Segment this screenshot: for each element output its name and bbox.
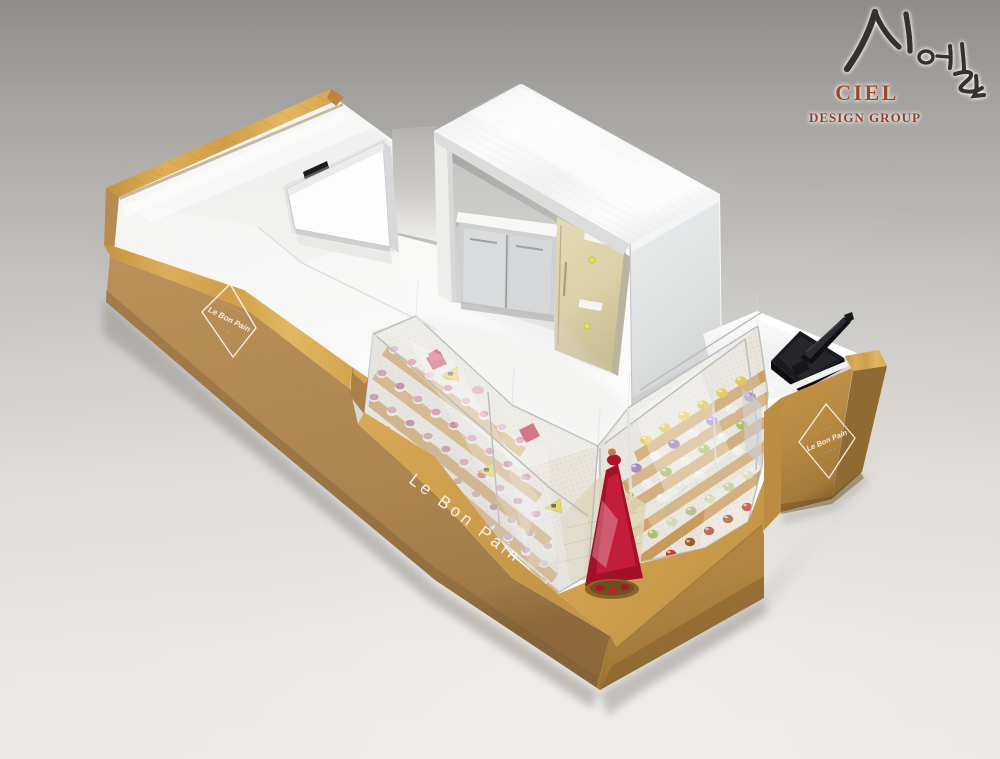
svg-text:DESIGN GROUP: DESIGN GROUP bbox=[809, 110, 921, 125]
svg-text:CIEL: CIEL bbox=[835, 80, 899, 105]
